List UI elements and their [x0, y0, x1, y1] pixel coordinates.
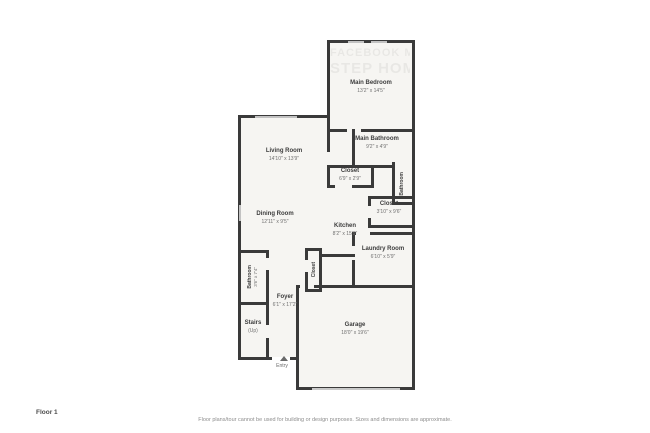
wall-segment: [352, 185, 374, 188]
room-bathroom-right: Bathroom: [395, 164, 409, 204]
wall-segment: [327, 129, 347, 132]
wall-segment: [412, 40, 415, 390]
room-dims: 3'10" x 9'6": [369, 209, 409, 215]
room-dims: (Up): [239, 328, 267, 334]
room-name: Dining Room: [235, 211, 315, 219]
room-living-room: Living Room 14'10" x 13'9": [244, 148, 324, 162]
wall-segment: [327, 40, 330, 152]
wall-segment: [296, 285, 300, 288]
room-garage: Garage 18'0" x 19'6": [315, 322, 395, 336]
room-name: Main Bathroom: [355, 136, 399, 144]
room-stairs: Stairs (Up): [239, 320, 267, 334]
garage-area-fill: [296, 285, 412, 390]
room-dims: 3'6" x 7'4": [253, 267, 259, 287]
room-name: Kitchen: [305, 223, 385, 231]
room-name: Closet: [369, 201, 409, 209]
room-name: Garage: [315, 322, 395, 330]
wall-segment: [266, 338, 269, 360]
room-laundry-room: Laundry Room 6'10" x 5'9": [353, 246, 413, 260]
window-marker: [255, 116, 297, 118]
room-dims: 6'1" x 17'2": [263, 302, 307, 308]
wall-segment: [238, 250, 269, 253]
entry-arrow-icon: [280, 356, 288, 361]
wall-segment: [322, 254, 355, 257]
room-name: Foyer: [263, 294, 307, 302]
wall-segment: [314, 285, 415, 288]
wall-segment: [361, 129, 415, 132]
room-dims: 12'11" x 9'5": [235, 219, 315, 225]
wall-segment: [266, 250, 269, 258]
disclaimer-text: Floor plans/tour cannot be used for buil…: [0, 417, 650, 423]
watermark-line2: STEP HOME: [330, 60, 410, 78]
room-name: Main Bedroom: [331, 80, 411, 88]
garage-door-marker: [312, 388, 400, 390]
room-closet-small: Closet: [307, 252, 321, 288]
room-dims: 13'2" x 14'5": [331, 88, 411, 94]
room-dims: 9'2" x 4'9": [355, 144, 399, 150]
room-main-bathroom: Main Bathroom 9'2" x 4'9": [355, 136, 399, 150]
floor-plan-page: FACEBOOK M STEP HOME Main Bedroom 13'2" …: [0, 0, 650, 433]
room-dims: 6'10" x 5'9": [353, 254, 413, 260]
room-name: Closet: [330, 168, 370, 176]
room-bathroom-left: Bathroom 3'6" x 7'4": [242, 254, 264, 300]
watermark-line1: FACEBOOK M: [330, 46, 410, 60]
room-main-bedroom: Main Bedroom 13'2" x 14'5": [331, 80, 411, 94]
room-dims: 6'9" x 2'9": [330, 176, 370, 182]
window-marker: [348, 41, 364, 43]
wall-segment: [352, 260, 355, 285]
room-dims: 18'0" x 19'6": [315, 330, 395, 336]
room-name: Stairs: [239, 320, 267, 328]
room-dining-room: Dining Room 12'11" x 9'5": [235, 211, 315, 225]
room-dims: 8'2" x 15'9": [305, 231, 385, 237]
room-dims: 14'10" x 13'9": [244, 156, 324, 162]
entry-label: Entry: [268, 363, 296, 369]
room-name: Bathroom: [399, 172, 405, 196]
room-name: Living Room: [244, 148, 324, 156]
floor-label: Floor 1: [36, 409, 58, 416]
window-marker: [371, 41, 387, 43]
room-kitchen: Kitchen 8'2" x 15'9": [305, 223, 385, 237]
wall-segment: [327, 185, 335, 188]
room-name: Laundry Room: [353, 246, 413, 254]
room-closet-right: Closet 3'10" x 9'6": [369, 201, 409, 215]
room-name: Closet: [311, 262, 317, 277]
room-foyer: Foyer 6'1" x 17'2": [263, 294, 307, 308]
room-closet-hall: Closet 6'9" x 2'9": [330, 168, 370, 182]
